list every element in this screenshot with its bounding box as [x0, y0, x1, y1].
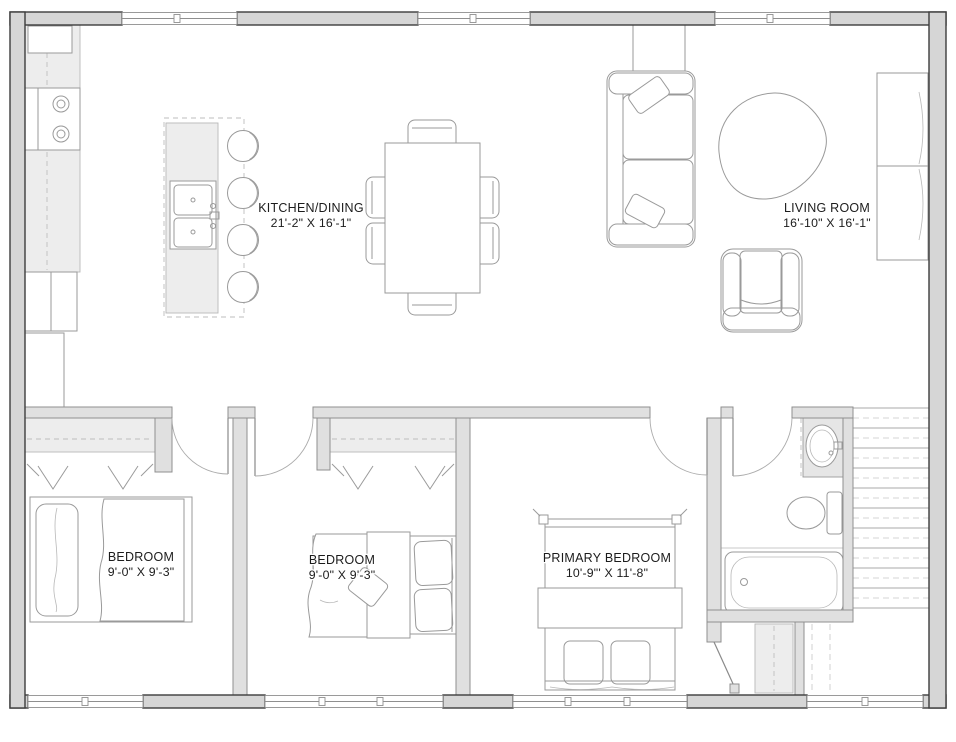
closet	[330, 418, 456, 489]
blanket	[538, 588, 682, 628]
floor-plan-page: KITCHEN/DINING 21'-2" X 16'-1" LIVING RO…	[0, 0, 956, 737]
window	[807, 696, 923, 708]
kitchen-dining-room	[25, 24, 499, 407]
bedpost	[539, 515, 548, 524]
dining-table	[385, 143, 480, 293]
primary-bedroom	[533, 509, 687, 690]
window	[715, 13, 830, 25]
double-sink	[170, 181, 219, 249]
wall	[843, 418, 853, 610]
bedroom-1-door	[172, 418, 228, 474]
bed	[533, 509, 687, 690]
wall	[929, 12, 946, 708]
wall	[792, 407, 853, 418]
bar-stools	[228, 131, 259, 303]
window	[265, 696, 443, 708]
wall	[721, 407, 733, 418]
wall	[443, 695, 513, 708]
wall	[233, 418, 247, 695]
room-dims-living-room: 16'-10" X 16'-1"	[783, 216, 871, 230]
toilet-bowl	[787, 497, 825, 529]
pillow	[414, 540, 453, 586]
bar-stool	[228, 178, 259, 209]
window	[122, 13, 237, 25]
pillow	[414, 588, 453, 632]
wall	[707, 610, 853, 622]
wall	[25, 407, 172, 418]
closet-shelf	[330, 418, 456, 452]
room-label-living-room: LIVING ROOM	[784, 201, 870, 215]
pantry-cabinet	[25, 333, 64, 407]
bathroom-door	[733, 418, 792, 476]
primary-bedroom-door	[650, 418, 707, 475]
wall	[530, 12, 715, 25]
bar-stool	[228, 225, 259, 256]
bar-stool	[228, 131, 259, 162]
under-stair-closet	[755, 624, 793, 693]
wall	[707, 622, 721, 642]
range-stove	[25, 88, 80, 150]
bedroom-2-door	[255, 418, 313, 476]
bedroom-2	[308, 418, 460, 638]
window	[28, 696, 143, 708]
sink-basin	[806, 425, 838, 467]
room-label-bedroom-2: BEDROOM	[309, 553, 375, 567]
closet-door	[714, 642, 739, 693]
wall	[795, 622, 804, 695]
closet	[25, 418, 155, 489]
refrigerator	[25, 272, 77, 331]
bathroom	[721, 417, 843, 613]
wall	[228, 407, 255, 418]
armchair	[721, 249, 802, 332]
toilet	[787, 492, 842, 534]
wall	[10, 12, 25, 708]
pillow	[611, 641, 650, 684]
dining-set	[366, 120, 499, 315]
wall	[143, 695, 265, 708]
room-dims-kitchen-dining: 21'-2" X 16'-1"	[271, 216, 352, 230]
hanger-icon	[38, 466, 68, 489]
pillow	[564, 641, 603, 684]
sofa	[607, 71, 695, 247]
room-dims-bedroom-2: 9'-0" X 9'-3"	[309, 568, 376, 582]
closet-jamb-wall	[317, 418, 330, 470]
bathtub	[725, 552, 843, 613]
room-label-primary-bedroom: PRIMARY BEDROOM	[543, 551, 671, 565]
closet-shelf	[25, 418, 155, 452]
doors	[172, 418, 792, 693]
closet-jamb-wall	[155, 418, 172, 472]
living-room	[607, 25, 928, 332]
wall	[456, 418, 470, 695]
hanger-icon	[343, 466, 373, 489]
toilet-tank	[827, 492, 842, 534]
bar-stool	[228, 272, 259, 303]
bedpost	[672, 515, 681, 524]
bed	[308, 532, 460, 638]
window	[513, 696, 687, 708]
window	[418, 13, 530, 25]
coffee-table	[719, 93, 827, 199]
floor-plan-canvas: KITCHEN/DINING 21'-2" X 16'-1" LIVING RO…	[0, 0, 956, 737]
media-cabinet	[877, 73, 928, 260]
stair-treads	[853, 408, 929, 608]
wall	[707, 418, 721, 610]
wall	[687, 695, 807, 708]
hanger-icon	[108, 466, 138, 489]
room-label-kitchen-dining: KITCHEN/DINING	[258, 201, 364, 215]
hanger-icon	[415, 466, 445, 489]
wall	[313, 407, 650, 418]
sink-vanity	[801, 417, 843, 477]
room-label-bedroom-1: BEDROOM	[108, 550, 174, 564]
room-dims-primary-bedroom: 10'-9"' X 11'-8"	[566, 566, 648, 580]
wall	[237, 12, 418, 25]
room-dims-bedroom-1: 9'-0" X 9'-3"	[108, 565, 175, 579]
wall	[10, 12, 122, 25]
counter-end-cabinet	[28, 26, 72, 53]
